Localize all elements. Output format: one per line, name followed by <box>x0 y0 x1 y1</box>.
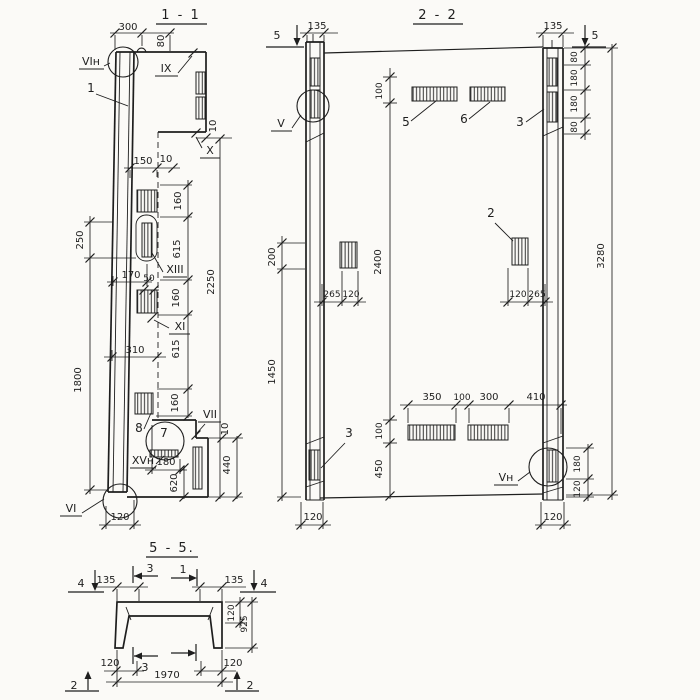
dim-2400: 2400 <box>373 249 384 274</box>
mesh-plate <box>135 393 153 414</box>
dim-265: 265 <box>528 290 545 300</box>
label-part8: 8 <box>135 421 143 435</box>
dim-3280: 3280 <box>596 243 607 268</box>
hole-plate <box>142 223 152 257</box>
dim-410: 410 <box>526 392 545 403</box>
label-plate5: 5 <box>402 115 410 129</box>
base-plate <box>150 450 178 457</box>
dim-150: 150 <box>133 156 152 167</box>
section-1-1: 1 - 1 VIн <box>60 8 243 530</box>
dim-135-left: 135 <box>307 21 326 32</box>
dim-265: 265 <box>323 290 340 300</box>
section-2-2: 2 - 2 5 5 <box>266 8 618 530</box>
marker-4: 4 <box>261 577 268 590</box>
dim-135-right: 135 <box>543 21 562 32</box>
marker-3: 3 <box>147 562 154 575</box>
edge-plate <box>196 97 205 119</box>
dim-120: 120 <box>110 512 129 523</box>
label-vn: Vн <box>499 471 514 484</box>
dim-620: 620 <box>169 473 180 492</box>
label-xiii: XIII <box>166 263 183 276</box>
dim-120-flange: 120 <box>227 604 237 621</box>
dim-120-col-left: 120 <box>303 512 322 523</box>
dim-120-col-right: 120 <box>543 512 562 523</box>
dim-615: 615 <box>172 239 183 258</box>
section-title: 5 - 5. <box>149 541 195 556</box>
left-rib <box>297 34 329 500</box>
anchor-zone <box>547 58 557 86</box>
dim-440: 440 <box>222 455 233 474</box>
anchor-zone <box>310 90 320 118</box>
edge-plate <box>193 447 202 489</box>
mesh-plate-2 <box>512 238 528 265</box>
dim-160: 160 <box>170 393 181 412</box>
mesh-plate-5 <box>412 87 457 101</box>
mesh-plate <box>340 242 357 268</box>
mesh-plate <box>137 190 157 212</box>
dim-310: 310 <box>125 345 144 356</box>
mesh-plate <box>408 425 455 440</box>
cut-marker-5-left: 5 <box>266 25 304 47</box>
dim-10-bottom: 10 <box>220 423 231 436</box>
section-5-5-title: 5 - 5. <box>146 541 198 557</box>
section-title: 1 - 1 <box>161 8 201 23</box>
dim-1800: 1800 <box>73 367 84 392</box>
section-title: 2 - 2 <box>418 8 458 23</box>
marker-4: 4 <box>78 577 85 590</box>
anchor-zone <box>547 450 558 482</box>
dim-100-bottom: 100 <box>375 422 385 439</box>
label-plate6: 6 <box>460 112 468 126</box>
dim-50: 50 <box>143 274 155 284</box>
dimensions-5-5: 135 135 120 925 120 120 1970 <box>96 575 258 687</box>
label-xi: XI <box>175 320 186 333</box>
dim-170: 170 <box>121 270 140 281</box>
drawing-sheet: 1 - 1 VIн <box>0 0 700 700</box>
label-part1: 1 <box>87 81 95 95</box>
marker-2: 2 <box>71 679 78 692</box>
dim-120: 120 <box>342 290 359 300</box>
anchor-zone <box>547 92 557 122</box>
dim-300: 300 <box>479 392 498 403</box>
dim-180: 180 <box>570 69 580 86</box>
dim-135-right: 135 <box>224 575 243 586</box>
dim-160: 160 <box>171 288 182 307</box>
channel-outline <box>115 602 222 648</box>
panel-plates <box>340 87 528 440</box>
label-v: V <box>277 117 285 130</box>
dim-1970: 1970 <box>154 670 179 681</box>
label-x: X <box>206 144 214 157</box>
dim-100-mid: 100 <box>453 393 470 403</box>
anchor-zone <box>309 450 320 480</box>
dim-615: 615 <box>171 339 182 358</box>
dim-180: 180 <box>156 457 175 468</box>
cut-marker-2-left: 2 <box>65 671 99 692</box>
dim-350: 350 <box>422 392 441 403</box>
dim-450: 450 <box>374 459 385 478</box>
label-xvn: XVн <box>132 454 154 467</box>
marker-3: 3 <box>142 661 149 674</box>
dim-250: 250 <box>75 230 86 249</box>
edge-plate <box>196 72 205 94</box>
mesh-plate-6 <box>470 87 505 101</box>
label-part7: 7 <box>160 426 168 440</box>
dim-80: 80 <box>570 51 580 63</box>
label-vii: VII <box>203 408 217 421</box>
bar-marker-1-top: 1 <box>171 563 197 586</box>
bar-marker-1-bottom <box>171 644 196 661</box>
dim-10-step: 10 <box>208 120 219 133</box>
dim-100-top: 100 <box>375 82 385 99</box>
cut-marker-2-right: 2 <box>225 671 259 692</box>
marker-5: 5 <box>592 29 599 42</box>
dim-120-bottom-right: 120 <box>223 658 242 669</box>
cut-marker-4-right: 4 <box>240 570 276 592</box>
technical-drawing: 1 - 1 VIн <box>0 0 700 700</box>
dim-80: 80 <box>570 121 580 133</box>
anchor-zone <box>310 58 320 86</box>
dim-160: 160 <box>173 191 184 210</box>
section-5-5: 5 - 5. 4 4 3 1 3 2 2 <box>65 541 276 692</box>
marker-5: 5 <box>274 29 281 42</box>
label-bar3-right: 3 <box>516 115 524 129</box>
section-1-1-title: 1 - 1 <box>156 8 207 24</box>
dim-925: 925 <box>240 615 250 632</box>
dim-80: 80 <box>156 35 167 48</box>
dim-180-right: 180 <box>573 455 583 472</box>
dim-120-right: 120 <box>573 480 583 497</box>
bar-marker-3-top: 3 <box>133 562 158 583</box>
marker-2: 2 <box>247 679 254 692</box>
dim-2250: 2250 <box>206 269 217 294</box>
label-vi: VI <box>66 502 77 515</box>
dim-200: 200 <box>267 247 278 266</box>
dim-300: 300 <box>118 22 137 33</box>
section-2-2-title: 2 - 2 <box>413 8 463 24</box>
label-plate2: 2 <box>487 206 495 220</box>
label-ix: IX <box>161 62 172 75</box>
mesh-plate <box>468 425 508 440</box>
marker-1: 1 <box>180 563 187 576</box>
label-bar3-left: 3 <box>345 426 353 440</box>
dim-1450: 1450 <box>267 359 278 384</box>
dim-120: 120 <box>509 290 526 300</box>
dim-10-top: 10 <box>160 154 173 165</box>
dim-180: 180 <box>570 95 580 112</box>
label-vin: VIн <box>82 55 100 68</box>
dim-135-left: 135 <box>96 575 115 586</box>
